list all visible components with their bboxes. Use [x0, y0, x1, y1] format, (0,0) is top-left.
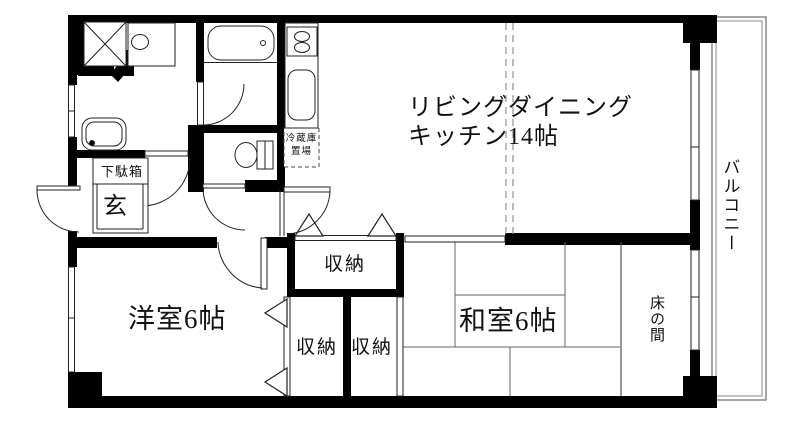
washroom-door [142, 151, 190, 206]
stove [287, 27, 317, 56]
room-label-western: 洋室6帖 [128, 303, 227, 335]
window-tokonoma-right [691, 250, 699, 350]
window-ldk-right [691, 70, 699, 200]
washbasin-counter [128, 23, 175, 66]
fusuma-washitsu-top [405, 236, 505, 242]
fridge-label-line1: 冷蔵庫 [284, 133, 319, 146]
ldk-label-line1: リビングダイニング [408, 94, 633, 123]
label-storage-bottom-left: 収納 [296, 337, 338, 360]
bathtub [204, 26, 277, 63]
label-shoe-cabinet: 下駄箱 [101, 164, 143, 180]
floor-plan: リビングダイニング キッチン14帖 洋室6帖 和室6帖 収納 収納 収納 下駄箱… [0, 0, 800, 423]
hall-ldk-boundary [280, 190, 284, 236]
kitchen-counter [285, 23, 318, 128]
western-room-door [218, 238, 267, 289]
window-western-room-left [69, 267, 75, 372]
ldk-label-line2: キッチン14帖 [408, 123, 633, 152]
entrance-door [37, 186, 80, 232]
label-tokonoma: 床の間 [647, 295, 665, 343]
label-genkan: 玄 [103, 193, 127, 222]
label-storage-top: 収納 [324, 254, 366, 277]
storage-right-track [397, 297, 403, 396]
toilet [235, 141, 273, 169]
washbasin-sink [82, 118, 126, 150]
bathroom-door [198, 82, 245, 125]
window-washroom-left [69, 85, 75, 137]
fridge-label-line2: 置場 [284, 146, 319, 159]
label-fridge-space: 冷蔵庫 置場 [284, 133, 319, 160]
label-storage-bottom-right: 収納 [351, 337, 393, 360]
toilet-door [203, 184, 245, 230]
washing-machine-pan [84, 22, 126, 66]
kitchen-sink [288, 70, 315, 120]
room-label-ldk: リビングダイニング キッチン14帖 [408, 94, 633, 152]
label-balcony: バルコニー [719, 158, 739, 253]
room-label-japanese: 和室6帖 [456, 305, 561, 337]
